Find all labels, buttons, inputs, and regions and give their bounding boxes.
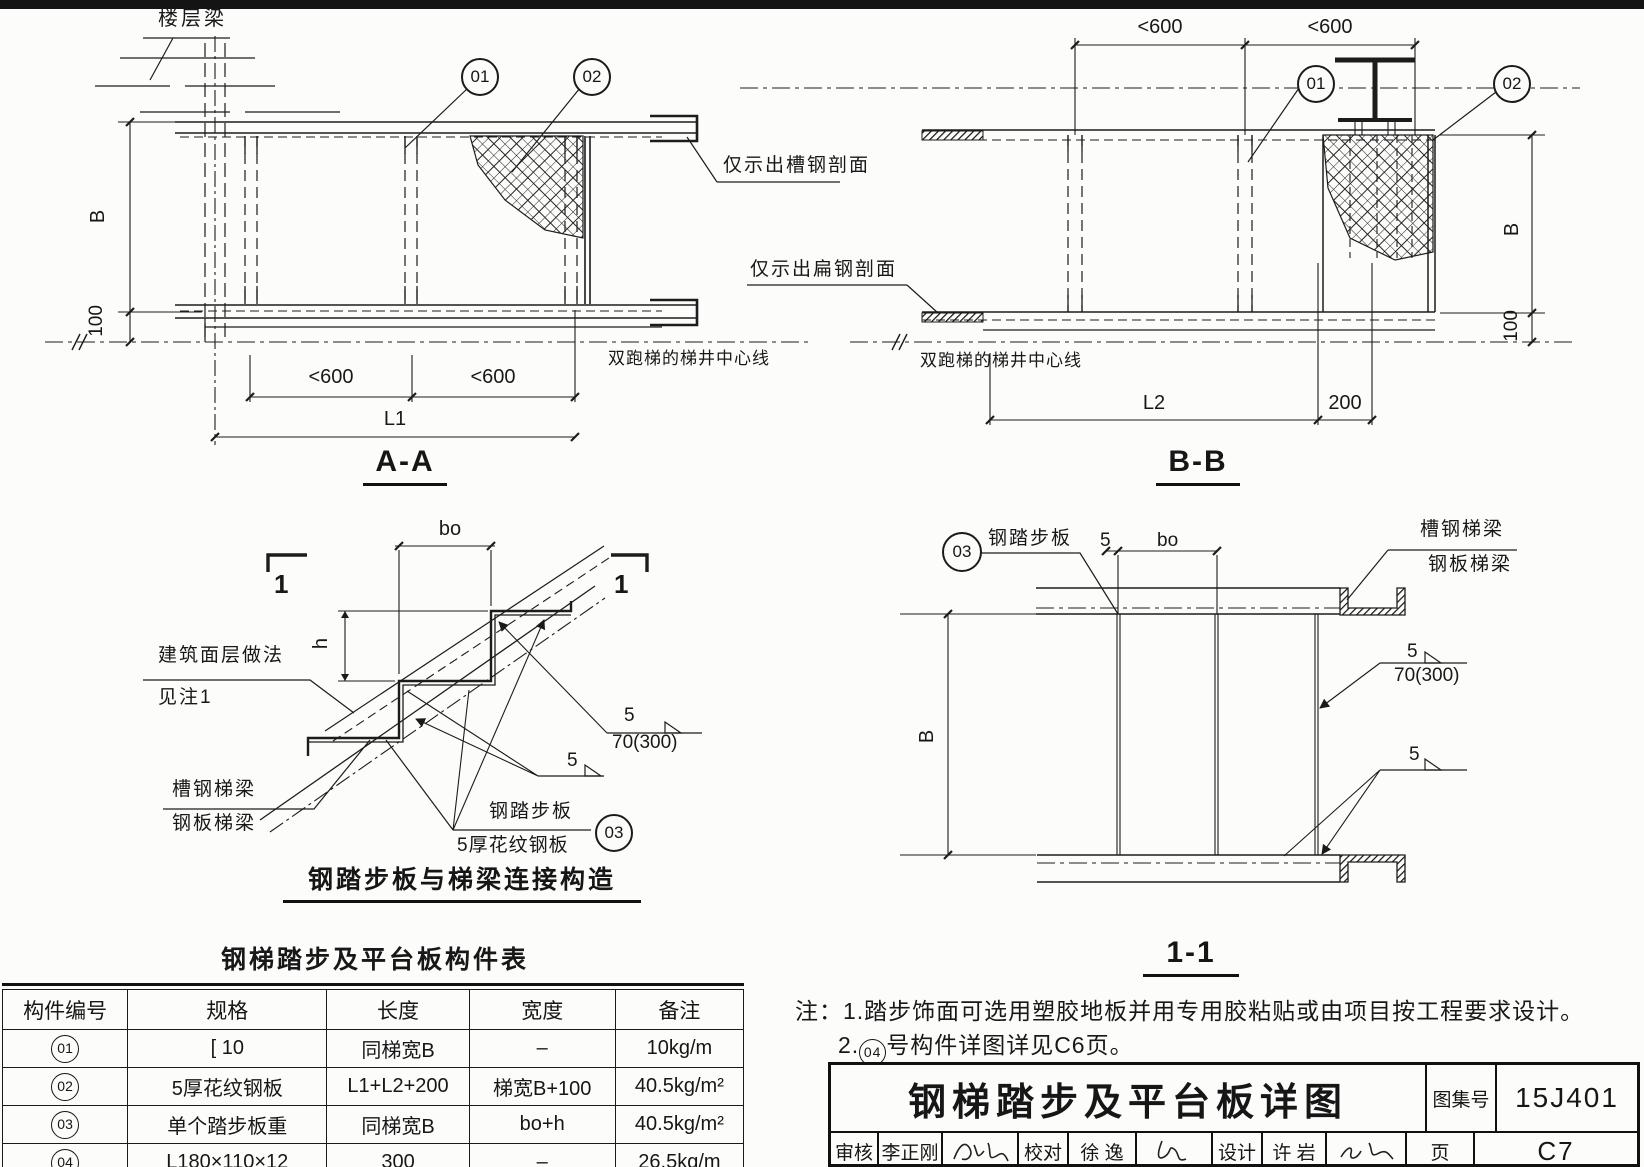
proof-label: 校对 (1019, 1133, 1069, 1167)
tread-plate-spec-label: 5厚花纹钢板 (457, 835, 569, 857)
table-title: 钢梯踏步及平台板构件表 (160, 946, 590, 975)
table-row: 02 5厚花纹钢板 L1+L2+200 梯宽B+100 40.5kg/m² (3, 1068, 744, 1106)
reviewer-signature (943, 1133, 1019, 1167)
flat-steel-section (922, 131, 983, 140)
component-number: 04 (51, 1149, 79, 1167)
atlas-number: 15J401 (1497, 1065, 1637, 1131)
flat-steel-note: 仅示出扁钢剖面 (750, 259, 897, 281)
callout-02: 02 (573, 58, 611, 96)
weld-length: 70(300) (612, 732, 678, 754)
dim-600: <600 (1290, 16, 1370, 39)
proofer-name: 徐 逸 (1069, 1133, 1137, 1167)
title-block: 钢梯踏步及平台板详图 图集号 15J401 审核 李正刚 校对 徐 逸 设计 许… (828, 1062, 1640, 1167)
callout-03: 03 (595, 814, 633, 852)
section-bb-title: B-B (1156, 445, 1240, 486)
floor-beam-label: 楼层梁 (158, 8, 227, 31)
plate-stringer-label: 钢板梯梁 (172, 813, 256, 835)
channel-stringer-section (1340, 855, 1405, 882)
dim-5: 5 (1100, 530, 1111, 552)
signature-icon (1144, 1137, 1204, 1167)
table-header-row: 构件编号 规格 长度 宽度 备注 (3, 990, 744, 1030)
weld-flag-icon (585, 765, 601, 776)
atlas-number-label: 图集号 (1427, 1065, 1497, 1131)
stair-well-centerline-label: 双跑梯的梯井中心线 (920, 351, 1082, 371)
table-row: 03 单个踏步板重 同梯宽B bo+h 40.5kg/m² (3, 1106, 744, 1144)
section-cut-number: 1 (614, 570, 628, 600)
signature-icon (1333, 1137, 1399, 1167)
dim-b: B (87, 210, 110, 223)
weld-length: 70(300) (1394, 665, 1460, 687)
col-header: 备注 (615, 990, 743, 1030)
dim-200: 200 (1315, 392, 1375, 415)
weld-size: 5 (624, 705, 635, 727)
tread-plate-label: 钢踏步板 (988, 528, 1072, 550)
finish-layer-label: 建筑面层做法 (158, 645, 284, 667)
tread-plate-profile (308, 601, 571, 756)
weld-size: 5 (1407, 641, 1418, 663)
designer-name: 许 岩 (1263, 1133, 1327, 1167)
flat-steel-section (922, 313, 983, 322)
weld-size: 5 (1409, 744, 1420, 766)
component-number: 02 (51, 1073, 79, 1101)
sheet-title: 钢梯踏步及平台板详图 (908, 1071, 1348, 1126)
detail-title: 钢踏步板与梯梁连接构造 (283, 860, 641, 903)
callout-03: 03 (942, 532, 982, 572)
dim-h: h (310, 638, 333, 649)
weld-flag-icon (1425, 759, 1441, 770)
notes-line-2: 2.04号构件详图详见C6页。 (838, 1032, 1134, 1066)
component-table: 构件编号 规格 长度 宽度 备注 01 [ 10 同梯宽B – 10kg/m 0… (2, 983, 744, 1167)
section-11-title: 1-1 (1143, 936, 1239, 977)
plate-stringer-label: 钢板梯梁 (1428, 554, 1512, 576)
signature-icon (948, 1137, 1012, 1167)
table-row: 01 [ 10 同梯宽B – 10kg/m (3, 1030, 744, 1068)
review-label: 审核 (831, 1133, 879, 1167)
dim-600: <600 (1120, 16, 1200, 39)
dim-b: B (1501, 223, 1524, 236)
dim-600: <600 (291, 366, 371, 389)
section-cut-marker (268, 555, 647, 572)
i-beam-section (1335, 60, 1415, 120)
component-number: 01 (51, 1035, 79, 1063)
dim-l1: L1 (370, 408, 420, 431)
dim-100: 100 (1501, 310, 1523, 342)
channel-stringer-label: 槽钢梯梁 (172, 779, 256, 801)
col-header: 宽度 (469, 990, 615, 1030)
dim-bo: bo (425, 518, 475, 541)
tread-plate-label: 钢踏步板 (489, 801, 573, 823)
notes-prefix: 注： (795, 998, 843, 1024)
dim-l2: L2 (1114, 392, 1194, 415)
col-header: 长度 (327, 990, 469, 1030)
dim-b: B (916, 730, 939, 743)
section-aa-title: A-A (363, 445, 447, 486)
weld-size: 5 (567, 750, 578, 772)
finish-layer-note: 见注1 (158, 687, 213, 709)
callout-02: 02 (1493, 65, 1531, 103)
page-label: 页 (1407, 1133, 1475, 1167)
section-cut-number: 1 (274, 570, 288, 600)
stair-well-centerline-label: 双跑梯的梯井中心线 (608, 349, 770, 369)
callout-01: 01 (461, 58, 499, 96)
component-number: 03 (51, 1111, 79, 1139)
plate-hatch (470, 136, 583, 238)
dim-bo: bo (1157, 530, 1178, 552)
drawing-sheet: 01 02 01 02 03 03 楼层梁 仅示出槽钢剖面 B 100 <600… (0, 0, 1644, 1167)
weld-flag-icon (1425, 652, 1441, 663)
dim-600: <600 (453, 366, 533, 389)
callout-01: 01 (1297, 65, 1335, 103)
design-label: 设计 (1213, 1133, 1263, 1167)
designer-signature (1327, 1133, 1407, 1167)
notes-line-1: 注：1.踏步饰面可选用塑胶地板并用专用胶粘贴或由项目按工程要求设计。 (795, 998, 1584, 1024)
col-header: 规格 (128, 990, 327, 1030)
dim-100: 100 (86, 305, 108, 337)
col-header: 构件编号 (3, 990, 128, 1030)
channel-stringer-section (1340, 588, 1405, 615)
proofer-signature (1137, 1133, 1213, 1167)
page-number: C7 (1475, 1133, 1637, 1167)
plate-hatch (1323, 135, 1433, 260)
reviewer-name: 李正刚 (879, 1133, 943, 1167)
table-row: 04 L180×110×12 300 – 26.5kg/m (3, 1144, 744, 1167)
channel-section-note: 仅示出槽钢剖面 (723, 155, 870, 177)
channel-stringer-label: 槽钢梯梁 (1420, 519, 1504, 541)
